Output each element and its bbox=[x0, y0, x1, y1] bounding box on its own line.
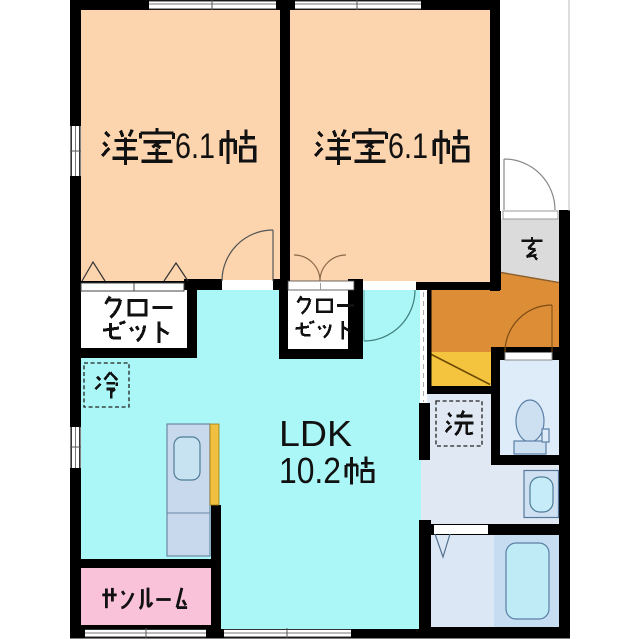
svg-text:6.1: 6.1 bbox=[175, 126, 215, 166]
svg-text:6.1: 6.1 bbox=[388, 126, 428, 166]
svg-text:LDK: LDK bbox=[279, 413, 352, 454]
svg-text:10.2: 10.2 bbox=[279, 450, 341, 491]
